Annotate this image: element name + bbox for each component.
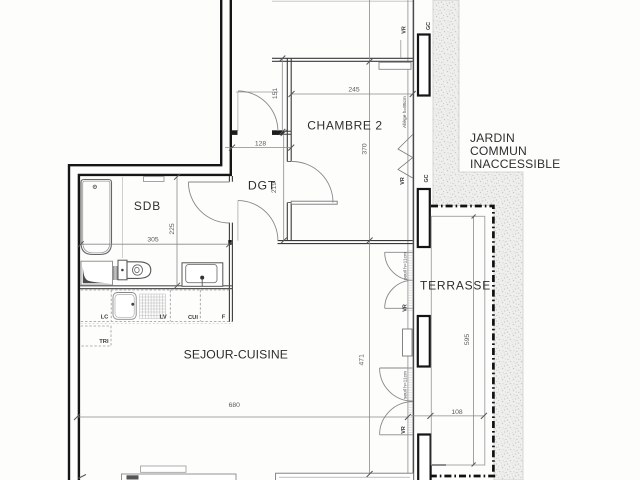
- svg-text:CUI: CUI: [188, 315, 198, 321]
- svg-text:SEJOUR-CUISINE: SEJOUR-CUISINE: [184, 347, 288, 361]
- svg-text:VR: VR: [400, 177, 406, 185]
- svg-text:LC: LC: [101, 315, 110, 321]
- svg-text:DGT: DGT: [248, 178, 276, 192]
- svg-text:680: 680: [229, 402, 241, 409]
- svg-text:JARDIN: JARDIN: [470, 131, 515, 145]
- svg-text:225: 225: [169, 223, 176, 235]
- svg-text:595: 595: [464, 334, 471, 346]
- svg-text:VR: VR: [403, 304, 409, 312]
- svg-text:305: 305: [147, 237, 159, 244]
- svg-text:CHAMBRE 2: CHAMBRE 2: [307, 119, 382, 133]
- svg-text:245: 245: [348, 87, 360, 94]
- svg-text:151: 151: [272, 88, 279, 100]
- svg-text:LV: LV: [160, 315, 167, 321]
- svg-text:GC: GC: [424, 174, 430, 182]
- svg-text:F: F: [222, 315, 226, 321]
- svg-text:TERRASSE: TERRASSE: [420, 279, 491, 293]
- svg-text:INACCESSIBLE: INACCESSIBLE: [470, 157, 560, 171]
- svg-text:370: 370: [362, 143, 369, 155]
- svg-text:Allège h=85cm: Allège h=85cm: [402, 96, 408, 128]
- svg-text:VR: VR: [401, 426, 407, 434]
- svg-text:TRI: TRI: [99, 339, 109, 345]
- svg-text:seuil h=11cm: seuil h=11cm: [403, 252, 409, 280]
- svg-text:seuil h=11cm: seuil h=11cm: [403, 371, 409, 399]
- svg-text:COMMUN: COMMUN: [470, 144, 527, 158]
- svg-text:VR: VR: [402, 26, 408, 34]
- svg-text:128: 128: [255, 141, 267, 148]
- svg-text:SDB: SDB: [134, 199, 161, 213]
- svg-text:108: 108: [451, 409, 463, 416]
- svg-text:471: 471: [358, 354, 365, 366]
- svg-text:GC: GC: [426, 22, 432, 30]
